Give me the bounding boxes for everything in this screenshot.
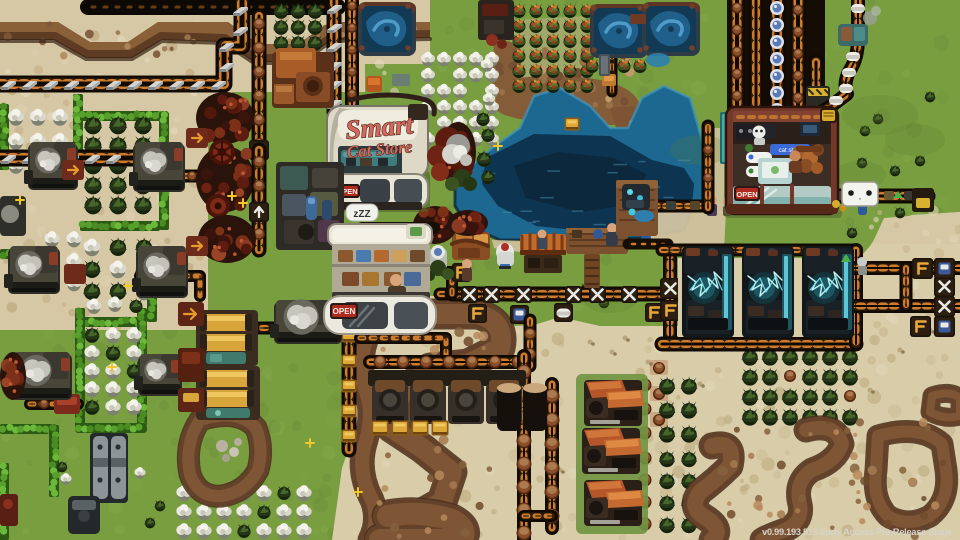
svg-text:zZZ: zZZ bbox=[353, 209, 370, 220]
svg-text:v0.99.193.513 Early Access Pre: v0.99.193.513 Early Access Pre-Release S… bbox=[762, 527, 952, 537]
svg-text:OPEN: OPEN bbox=[333, 307, 356, 316]
svg-text:OPEN: OPEN bbox=[736, 190, 757, 199]
svg-text:,: , bbox=[859, 192, 861, 201]
